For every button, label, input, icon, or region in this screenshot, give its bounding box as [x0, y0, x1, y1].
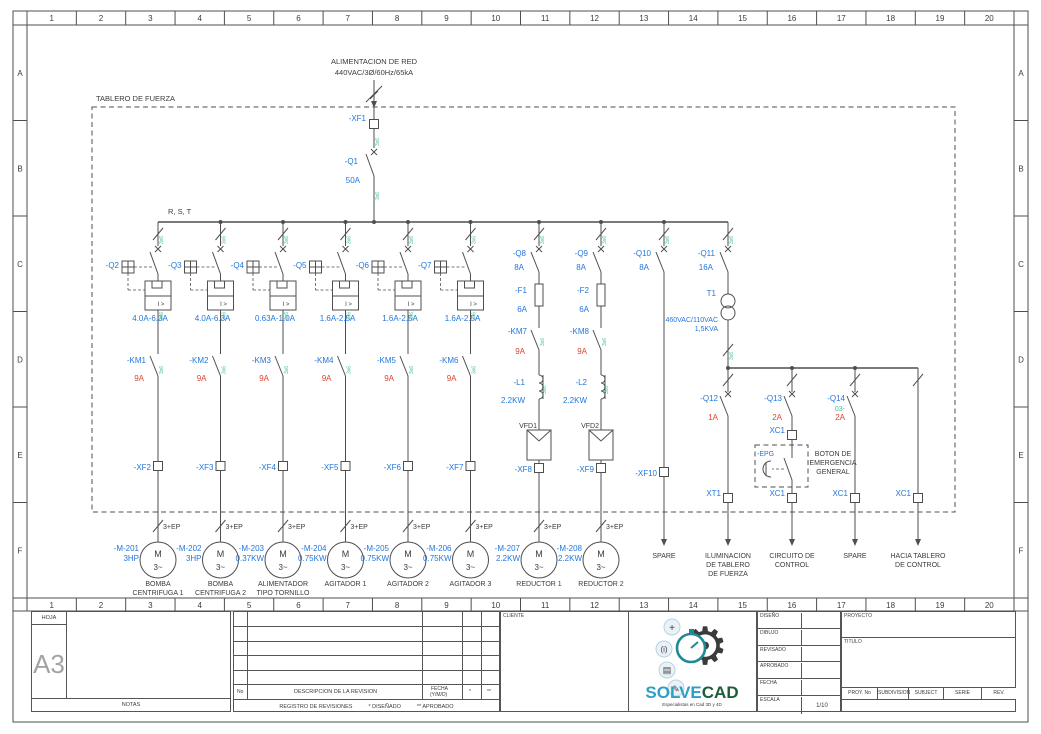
- switch-blade: [784, 396, 792, 416]
- reactor-label: -L2: [575, 378, 587, 387]
- fuse-label: -F2: [577, 286, 590, 295]
- wire-tag: 3x6: [540, 338, 546, 346]
- motor-tag: -M-202: [176, 544, 202, 553]
- wire-tag: 3x6: [542, 386, 548, 394]
- motor-rating: 2.2KW: [496, 554, 520, 563]
- transformer-power: 1,5KVA: [695, 326, 719, 333]
- motor-tag: -M-201: [114, 544, 140, 553]
- rev-footer-approved: ** APROBADO: [417, 704, 454, 710]
- switch-blade: [213, 356, 221, 376]
- cable-label: 3+EP: [226, 524, 244, 531]
- field-value: [801, 647, 842, 663]
- epg-label: -EPG: [757, 451, 774, 458]
- switch-blade: [531, 330, 539, 350]
- overload-notch: [152, 281, 162, 288]
- load-label: REDUCTOR 1: [516, 581, 561, 588]
- load-label: ALIMENTADOR: [258, 581, 308, 588]
- overload-symbol: I >: [345, 302, 352, 308]
- wire-tag: 3x6: [159, 236, 165, 244]
- ruler-row-letter: B: [1018, 164, 1023, 173]
- contactor-label: -KM5: [377, 356, 397, 365]
- field-value: 1/10: [801, 697, 842, 714]
- breaker-label: -Q8: [513, 249, 527, 258]
- overload-notch: [340, 281, 350, 288]
- hoja-label: HOJA: [32, 612, 66, 624]
- wire-tag: 3x6: [284, 236, 290, 244]
- terminal-label: -XF2: [134, 463, 152, 472]
- ruler-col-number: 1: [49, 601, 54, 610]
- ruler-col-number: 7: [346, 601, 351, 610]
- field-value: [801, 663, 842, 679]
- wire-tag: 3x6: [602, 338, 608, 346]
- terminal-square: [851, 494, 860, 503]
- supply-title: ALIMENTACION DE RED: [331, 57, 418, 66]
- terminal-label: -XF9: [577, 465, 595, 474]
- ruler-row-letter: C: [1018, 260, 1024, 269]
- switch-blade: [847, 396, 855, 416]
- approval-field-rows: DISEÑODIBUJOREVISADOAPROBADOFECHAESCALA1…: [758, 612, 840, 713]
- logo-part2: CAD: [702, 683, 739, 702]
- motor-phase: 3~: [278, 563, 287, 572]
- load-label: TIPO TORNILLO: [256, 590, 310, 597]
- switch-blade: [366, 154, 374, 176]
- breaker-label: -Q13: [764, 394, 782, 403]
- terminal-label: -XF8: [515, 465, 533, 474]
- ruler-col-number: 17: [837, 601, 846, 610]
- breaker-rating: 2A: [772, 413, 782, 422]
- ruler-row-letter: A: [17, 69, 23, 78]
- sheet-size-cell: A3: [31, 624, 67, 699]
- ruler-row-letter: E: [1018, 451, 1023, 460]
- terminal-square: [370, 120, 379, 129]
- terminal-square: [788, 431, 797, 440]
- revision-table: No DESCRIPCION DE LA REVISION FECHA (Y/M…: [233, 611, 500, 712]
- rev-no-label: No: [237, 689, 243, 695]
- contactor-rating: 9A: [259, 374, 269, 383]
- breaker-label: -Q14: [827, 394, 845, 403]
- terminal-label: -XF3: [196, 463, 214, 472]
- field-row-escala: ESCALA1/10: [758, 696, 840, 713]
- overload-symbol: I >: [408, 302, 415, 308]
- ruler-col-number: 9: [444, 14, 449, 23]
- plus-icon: +: [669, 623, 675, 634]
- ruler-col-number: 5: [247, 601, 252, 610]
- breaker-label: -Q9: [575, 249, 589, 258]
- cliente-label: CLIENTE: [503, 613, 524, 619]
- ruler-row-letter: B: [17, 164, 22, 173]
- breaker-rating: 1A: [708, 413, 718, 422]
- ruler-col-number: 8: [395, 601, 400, 610]
- supply-spec: 440VAC/3Ø/60Hz/65kA: [335, 68, 413, 77]
- terminal-square: [216, 462, 225, 471]
- wire-tag: 3x6: [604, 386, 610, 394]
- terminal-square: [466, 462, 475, 471]
- switch-blade: [150, 252, 158, 274]
- ruler-row-letter: C: [17, 260, 23, 269]
- logo-wordmark: SOLVECAD: [645, 683, 738, 702]
- terminal-label: -XF1: [349, 114, 367, 123]
- revision-row: [234, 612, 499, 626]
- overload-notch: [402, 281, 412, 288]
- breaker-label: -Q2: [106, 261, 120, 270]
- terminal-label: XC1: [769, 489, 785, 498]
- wire-tag: 3x6: [472, 312, 478, 320]
- cable-label: 3+EP: [163, 524, 181, 531]
- switch-blade: [338, 252, 346, 274]
- bus-label: R, S, T: [168, 207, 192, 216]
- terminal-square: [597, 464, 606, 473]
- terminal-square: [279, 462, 288, 471]
- motor-rating: 0.37KW: [236, 554, 265, 563]
- field-label: DISEÑO: [760, 613, 779, 619]
- overload-notch: [465, 281, 475, 288]
- wire-tag: 3x6: [472, 236, 478, 244]
- arrow-down: [789, 539, 795, 546]
- vfd-chevron: [527, 430, 551, 441]
- ruler-col-number: 15: [738, 14, 747, 23]
- revision-row: [234, 670, 499, 684]
- motor-circle: [453, 542, 489, 578]
- load-label: CONTROL: [775, 562, 809, 569]
- field-label: ESCALA: [760, 697, 780, 703]
- motor-m: M: [467, 549, 475, 559]
- wire-tag: 3x6: [729, 352, 735, 360]
- wire-tag: 3x6: [347, 236, 353, 244]
- wire-tag: 3x6: [665, 236, 671, 244]
- motor-phase: 3~: [403, 563, 412, 572]
- breaker-label: -Q4: [231, 261, 245, 270]
- ruler-row-letter: F: [18, 546, 23, 555]
- ruler-col-number: 12: [590, 14, 599, 23]
- load-label: AGITADOR 2: [387, 581, 429, 588]
- load-label: BOMBA: [208, 581, 234, 588]
- ruler-col-number: 10: [491, 14, 500, 23]
- motor-m: M: [154, 549, 162, 559]
- breaker-rating: 2A: [835, 413, 845, 422]
- load-label: DE FUERZA: [708, 571, 748, 578]
- load-label: AGITADOR 1: [325, 581, 367, 588]
- motor-rating: 0.75KW: [361, 554, 390, 563]
- vfd-chevron: [589, 430, 613, 441]
- ruler-col-number: 12: [590, 601, 599, 610]
- terminal-label: XC1: [832, 489, 848, 498]
- load-label: SPARE: [843, 553, 867, 560]
- motor-phase: 3~: [466, 563, 475, 572]
- notes-area: [66, 611, 231, 699]
- rev-header-row: No DESCRIPCION DE LA REVISION FECHA (Y/M…: [234, 684, 499, 699]
- motor-m: M: [342, 549, 350, 559]
- terminal-label: XT1: [706, 489, 721, 498]
- contactor-rating: 9A: [447, 374, 457, 383]
- cable-label: 3+EP: [544, 524, 562, 531]
- ruler-col-number: 6: [296, 601, 301, 610]
- cable-label: 3+EP: [476, 524, 494, 531]
- switch-blade: [275, 356, 283, 376]
- motor-tag: -M-207: [495, 544, 521, 553]
- stopwatch-crown: [689, 629, 694, 633]
- notas-label: NOTAS: [32, 699, 230, 711]
- wire-tag: 3x6: [222, 236, 228, 244]
- vfd-label: VFD1: [519, 423, 537, 430]
- vfd-label: VFD2: [581, 423, 599, 430]
- title-block: HOJA A3 NOTAS No DESCRIPCION DE LA REVIS…: [31, 611, 1016, 712]
- rev-star: *: [469, 689, 471, 695]
- motor-circle: [583, 542, 619, 578]
- contactor-rating: 9A: [515, 347, 525, 356]
- contactor-rating: 9A: [322, 374, 332, 383]
- button-caption: BOTON DE: [815, 451, 852, 458]
- field-value: [801, 613, 842, 629]
- wire-tag: 3x6: [409, 366, 415, 374]
- ruler-col-number: 18: [886, 14, 895, 23]
- cable-label: 3+EP: [351, 524, 369, 531]
- ruler-row-letter: A: [1018, 69, 1024, 78]
- switch-blade: [593, 252, 601, 272]
- transformer-label: T1: [707, 289, 717, 298]
- ruler-col-number: 13: [639, 14, 648, 23]
- overload-notch: [277, 281, 287, 288]
- ruler-col-number: 20: [985, 14, 994, 23]
- ruler-col-number: 20: [985, 601, 994, 610]
- rev-footer-designed: * DISEÑADO: [368, 704, 400, 710]
- field-row-dibujo: DIBUJO: [758, 629, 840, 646]
- junction-dot: [372, 220, 376, 224]
- revision-row: [234, 641, 499, 655]
- wire-tag: 3x6: [409, 312, 415, 320]
- ruler-col-number: 3: [148, 601, 153, 610]
- ruler-col-number: 4: [197, 601, 202, 610]
- overload-symbol: I >: [158, 302, 165, 308]
- fuse-rating: 6A: [579, 305, 589, 314]
- fuse-rating: 6A: [517, 305, 527, 314]
- contactor-label: -KM3: [252, 356, 272, 365]
- ruler-col-number: 9: [444, 601, 449, 610]
- terminal-label: -XF4: [259, 463, 277, 472]
- wire-tag: 3x6: [540, 236, 546, 244]
- terminal-square: [914, 494, 923, 503]
- rev-dstar: **: [487, 689, 491, 695]
- motor-tag: -M-203: [239, 544, 265, 553]
- arrow-down: [852, 539, 858, 546]
- rev-date-format: (Y/M/D): [430, 692, 447, 698]
- vfd-box: [589, 430, 613, 460]
- titulo-cell: TITULO: [841, 637, 1016, 688]
- motor-rating: 3HP: [123, 554, 139, 563]
- breaker-label: -Q1: [345, 157, 359, 166]
- ruler-col-number: 6: [296, 14, 301, 23]
- overload-symbol: I >: [470, 302, 477, 308]
- doc-number-values: [841, 699, 1016, 712]
- ruler-col-number: 19: [936, 14, 945, 23]
- rev-footer: REGISTRO DE REVISIONES: [279, 704, 352, 710]
- field-label: FECHA: [760, 680, 777, 686]
- motor-circle: [328, 542, 364, 578]
- breaker-label: -Q10: [633, 249, 651, 258]
- motor-m: M: [217, 549, 225, 559]
- switch-blade: [656, 252, 664, 272]
- load-label: SPARE: [652, 553, 676, 560]
- switch-blade: [400, 252, 408, 274]
- rev-desc-label: DESCRIPCION DE LA REVISION: [294, 689, 377, 695]
- field-label: APROBADO: [760, 663, 788, 669]
- motor-m: M: [597, 549, 605, 559]
- ruler-col-number: 16: [787, 601, 796, 610]
- ruler-col-number: 13: [639, 601, 648, 610]
- transformer-spec: 460VAC/110VAC: [665, 317, 718, 324]
- hoja-cell: HOJA: [31, 611, 67, 625]
- ruler-col-number: 15: [738, 601, 747, 610]
- terminal-label: -XF5: [321, 463, 339, 472]
- motor-rating: 3HP: [186, 554, 202, 563]
- wire-tag: 3x6: [222, 366, 228, 374]
- breaker-label: -Q7: [418, 261, 432, 270]
- contactor-label: -KM8: [570, 327, 590, 336]
- motor-tag: -M-208: [557, 544, 583, 553]
- motor-circle: [203, 542, 239, 578]
- printer-icon: ▤: [663, 665, 672, 675]
- switch-blade: [213, 252, 221, 274]
- motor-rating: 2.2KW: [558, 554, 582, 563]
- ruler-col-number: 7: [346, 14, 351, 23]
- wire-tag: 3x6: [472, 366, 478, 374]
- overload-symbol: I >: [220, 302, 227, 308]
- field-value: [801, 680, 842, 696]
- proyecto-cell: PROYECTO: [841, 611, 1016, 638]
- field-row-fecha: FECHA: [758, 679, 840, 696]
- ruler-col-number: 14: [689, 601, 698, 610]
- motor-circle: [521, 542, 557, 578]
- wire-tag: 3x6: [222, 312, 228, 320]
- ruler-col-number: 18: [886, 601, 895, 610]
- overload-notch: [215, 281, 225, 288]
- load-label: REDUCTOR 2: [578, 581, 623, 588]
- switch-blade: [463, 356, 471, 376]
- switch-blade: [275, 252, 283, 274]
- switch-blade: [720, 252, 728, 272]
- motor-phase: 3~: [596, 563, 605, 572]
- field-label: DIBUJO: [760, 630, 778, 636]
- logo-tagline: Especialistas en Cad 3D y 4D: [662, 702, 722, 707]
- reactor-rating: 2.2KW: [563, 396, 587, 405]
- motor-circle: [390, 542, 426, 578]
- panel-label: TABLERO DE FUERZA: [96, 94, 175, 103]
- motor-m: M: [279, 549, 287, 559]
- breaker-label: -Q12: [700, 394, 718, 403]
- contactor-label: -KM1: [127, 356, 147, 365]
- terminal-label: -XF10: [635, 469, 657, 478]
- wire-tag: 3x6: [159, 312, 165, 320]
- motor-rating: 0.75KW: [298, 554, 327, 563]
- load-label: BOMBA: [145, 581, 171, 588]
- terminal-label: -XF6: [384, 463, 402, 472]
- motor-m: M: [404, 549, 412, 559]
- reactor-rating: 2.2KW: [501, 396, 525, 405]
- contactor-rating: 9A: [197, 374, 207, 383]
- terminal-square: [724, 494, 733, 503]
- ruler-row-letter: D: [1018, 355, 1024, 364]
- reactor-label: -L1: [513, 378, 525, 387]
- field-row-aprobado: APROBADO: [758, 662, 840, 679]
- motor-phase: 3~: [216, 563, 225, 572]
- ruler-row-letter: F: [1019, 546, 1024, 555]
- load-label: ILUMINACION: [705, 553, 751, 560]
- approval-fields: DISEÑODIBUJOREVISADOAPROBADOFECHAESCALA1…: [757, 611, 841, 712]
- switch-blade: [463, 252, 471, 274]
- wire-tag: 3x6: [284, 312, 290, 320]
- breaker-rating: 50A: [346, 176, 361, 185]
- terminal-label: -XF7: [446, 463, 464, 472]
- switch-blade: [531, 252, 539, 272]
- info-icon: (i): [660, 645, 667, 654]
- switch-blade: [720, 396, 728, 416]
- motor-phase: 3~: [341, 563, 350, 572]
- switch-blade: [593, 330, 601, 350]
- contactor-label: -KM2: [189, 356, 209, 365]
- ruler-col-number: 11: [541, 601, 550, 610]
- fuse-box: [597, 284, 605, 306]
- arrow-down: [661, 539, 667, 546]
- motor-phase: 3~: [534, 563, 543, 572]
- motor-tag: -M-205: [364, 544, 390, 553]
- motor-tag: -M-204: [301, 544, 327, 553]
- field-label: REVISADO: [760, 647, 786, 653]
- ruler-col-number: 2: [99, 14, 104, 23]
- wire-tag: 3x6: [602, 236, 608, 244]
- motor-m: M: [535, 549, 543, 559]
- contactor-label: -KM7: [508, 327, 528, 336]
- switch-blade: [400, 356, 408, 376]
- company-logo: ⚙ + (i) ▤ ✎ SOLVECAD Especialistas en Ca…: [629, 612, 756, 711]
- motor-circle: [140, 542, 176, 578]
- contactor-rating: 9A: [577, 347, 587, 356]
- ruler-col-number: 3: [148, 14, 153, 23]
- terminal-square: [788, 494, 797, 503]
- cable-label: 3+EP: [606, 524, 624, 531]
- button-caption: EMERGENCIA: [809, 460, 856, 467]
- ruler-col-number: 14: [689, 14, 698, 23]
- fuse-box: [535, 284, 543, 306]
- field-row-revisado: REVISADO: [758, 646, 840, 663]
- motor-rating: 0.75KW: [423, 554, 452, 563]
- revision-row: [234, 655, 499, 669]
- wire-tag: 3x6: [409, 236, 415, 244]
- proyecto-label: PROYECTO: [844, 613, 872, 619]
- terminal-square: [660, 468, 669, 477]
- breaker-label: -Q3: [168, 261, 182, 270]
- drawing-sheet: 1122334455667788991010111112121313141415…: [0, 0, 1041, 734]
- ruler-col-number: 19: [936, 601, 945, 610]
- field-value: [801, 630, 842, 646]
- logo-part1: SOLVE: [645, 683, 701, 702]
- load-label: AGITADOR 3: [450, 581, 492, 588]
- field-row-diseño: DISEÑO: [758, 612, 840, 629]
- logo-cell: ⚙ + (i) ▤ ✎ SOLVECAD Especialistas en Ca…: [628, 611, 757, 712]
- load-label: DE CONTROL: [895, 562, 941, 569]
- ruler-row-letter: E: [17, 451, 22, 460]
- revision-row: [234, 626, 499, 640]
- arrow-down: [725, 539, 731, 546]
- fuse-label: -F1: [515, 286, 528, 295]
- contactor-label: -KM4: [314, 356, 334, 365]
- arrow-down: [915, 539, 921, 546]
- titulo-label: TITULO: [844, 639, 862, 645]
- terminal-square: [404, 462, 413, 471]
- cliente-cell: CLIENTE: [500, 611, 629, 712]
- ruler-col-number: 16: [787, 14, 796, 23]
- ruler-row-letter: D: [17, 355, 23, 364]
- load-label: CIRCUITO DE: [769, 553, 815, 560]
- breaker-rating: 8A: [576, 263, 586, 272]
